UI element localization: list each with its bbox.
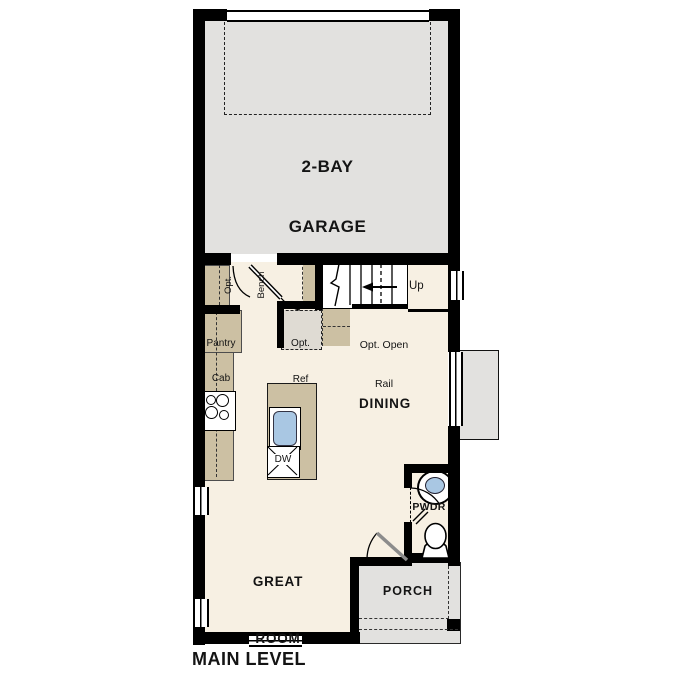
garage-label-line2: GARAGE [240,217,415,237]
opt-ref-label-line2: Ref [281,374,320,386]
opt-bench-label-line1: Opt. [223,261,234,309]
window-right-dining [449,352,463,426]
window-left-1 [193,487,209,515]
wall-porch-top [350,557,412,566]
pantry-label-line2: Cab [200,373,242,385]
floor-plan: 2-BAY GARAGE Opt. Bench Pantry Cab Opt. … [0,0,687,687]
kitchen-sink-basin [273,411,297,446]
garage-label: 2-BAY GARAGE [240,117,415,277]
wall-right-upper [448,9,460,352]
opt-ref-label: Opt. Ref [281,314,320,410]
opt-bench-label-line2: Bench [256,261,267,309]
garage-door-swing-zone [224,17,431,115]
opt-open-rail-label-line1: Opt. Open [340,339,428,352]
side-bumpout [459,350,499,440]
garage-label-line1: 2-BAY [240,157,415,177]
pantry-label: Pantry Cab [200,315,242,407]
stair-rail-return [408,309,448,312]
wall-garage-top-left [193,9,227,21]
powder-room-label: PWDR [407,501,451,513]
great-room-label-line1: GREAT [231,572,325,591]
plan-title: MAIN LEVEL [192,649,306,670]
opt-ref-label-line1: Opt. [281,338,320,350]
dining-label: DINING [344,396,426,411]
dishwasher-label: DW [271,454,295,465]
porch-edge-dash [448,566,451,619]
window-left-2 [193,599,209,627]
stairs-up-label: Up [409,280,424,292]
wall-right-lower [448,426,460,566]
window-right-stair [449,271,464,300]
burner-icon [205,406,218,419]
porch-step-dash-1 [359,618,449,621]
wall-powder-left-upper [404,464,412,488]
wall-powder-left-lower [404,522,412,557]
powder-sink-basin [425,477,445,494]
porch-label: PORCH [368,584,448,598]
wall-powder-bottom [404,553,460,563]
opt-bench-label: Opt. Bench [201,261,227,309]
great-room-label-line2: ROOM [231,629,325,648]
burner-icon [219,410,229,420]
pantry-label-line1: Pantry [200,338,242,350]
opt-open-rail-label-line2: Rail [340,378,428,391]
porch-step-dash-2 [359,629,458,632]
stair-rail [352,304,408,309]
wall-porch-left [350,557,359,633]
